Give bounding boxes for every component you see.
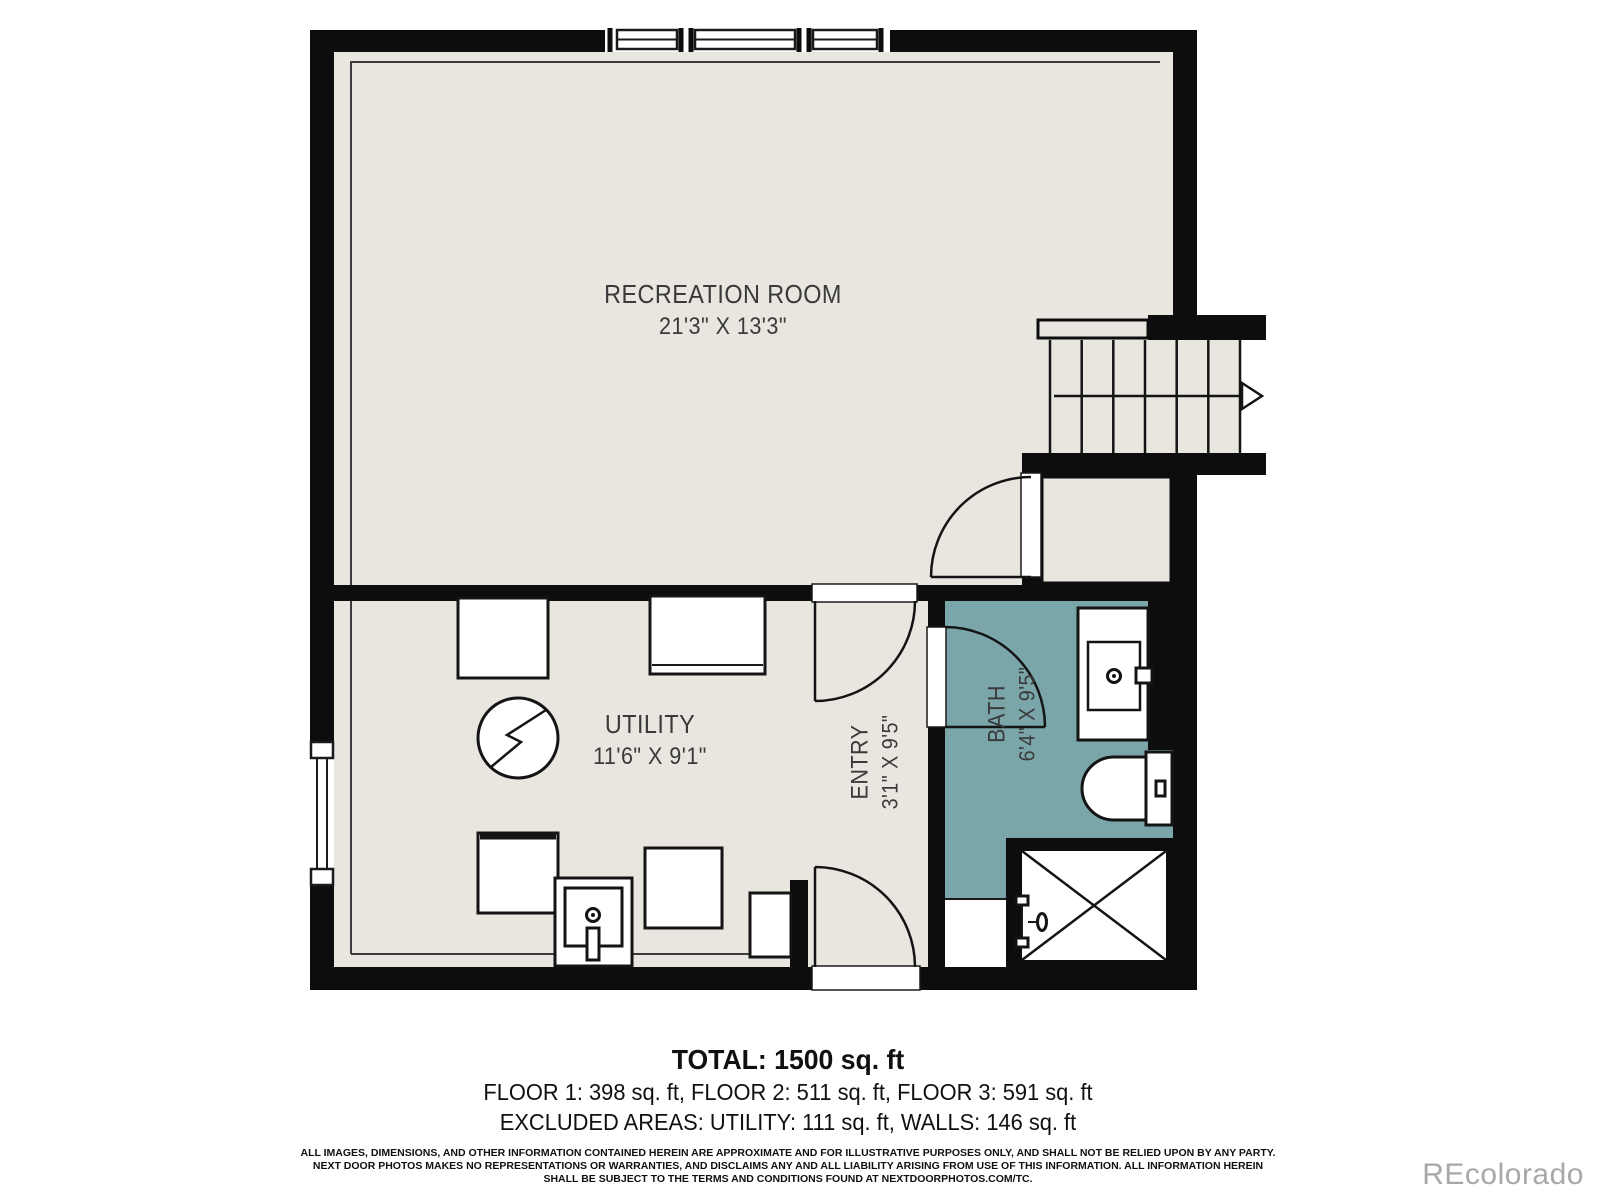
area-summary: TOTAL: 1500 sq. ft FLOOR 1: 398 sq. ft, … [0, 1044, 1576, 1186]
room-dimensions: 21'3" X 13'3" [604, 311, 842, 343]
entry-label: ENTRY 3'1" X 9'5" [845, 715, 906, 810]
bath-closet-floor [945, 898, 1006, 967]
room-name: UTILITY [593, 707, 707, 741]
recreation-room-label: RECREATION ROOM 21'3" X 13'3" [604, 277, 842, 343]
stair-bump-top-wall [1148, 315, 1266, 340]
utility-room-label: UTILITY 11'6" X 9'1" [593, 707, 707, 773]
floor-areas-text: FLOOR 1: 398 sq. ft, FLOOR 2: 511 sq. ft… [39, 1079, 1536, 1106]
disclaimer-text: ALL IMAGES, DIMENSIONS, AND OTHER INFORM… [0, 1147, 1576, 1186]
room-name: BATH [982, 667, 1013, 762]
room-name: ENTRY [845, 715, 876, 810]
excluded-areas-text: EXCLUDED AREAS: UTILITY: 111 sq. ft, WAL… [39, 1109, 1536, 1136]
laundry-sink-icon [555, 878, 632, 966]
top-window-icon [605, 28, 890, 52]
toilet-icon [1082, 752, 1172, 825]
floor-plan-drawing [0, 0, 1600, 1200]
room-dimensions: 6'4" X 9'5" [1013, 667, 1043, 762]
stair-handrail [1038, 320, 1148, 338]
bath-label: BATH 6'4" X 9'5" [982, 667, 1043, 762]
room-dimensions: 3'1" X 9'5" [876, 715, 906, 810]
room-dimensions: 11'6" X 9'1" [593, 741, 707, 773]
shelf-box-icon [750, 893, 791, 957]
recolorado-watermark: REcolorado [1422, 1158, 1584, 1192]
appliance-box-icon [458, 598, 548, 678]
vanity-sink-icon [1078, 608, 1152, 740]
shower-x-icon [1006, 838, 1173, 967]
floor-plan-page: RECREATION ROOM 21'3" X 13'3" UTILITY 11… [0, 0, 1600, 1200]
under-stair-closet [1040, 475, 1173, 585]
entry-stub-wall [790, 880, 808, 967]
appliance-box-icon [645, 848, 722, 928]
electrical-bolt-icon [478, 698, 558, 778]
total-area-text: TOTAL: 1500 sq. ft [39, 1044, 1536, 1076]
appliance-box-icon [650, 596, 765, 674]
entry-bath-wall [928, 727, 945, 967]
appliance-box-icon [478, 833, 558, 913]
left-window-icon [310, 742, 334, 885]
room-name: RECREATION ROOM [604, 277, 842, 311]
